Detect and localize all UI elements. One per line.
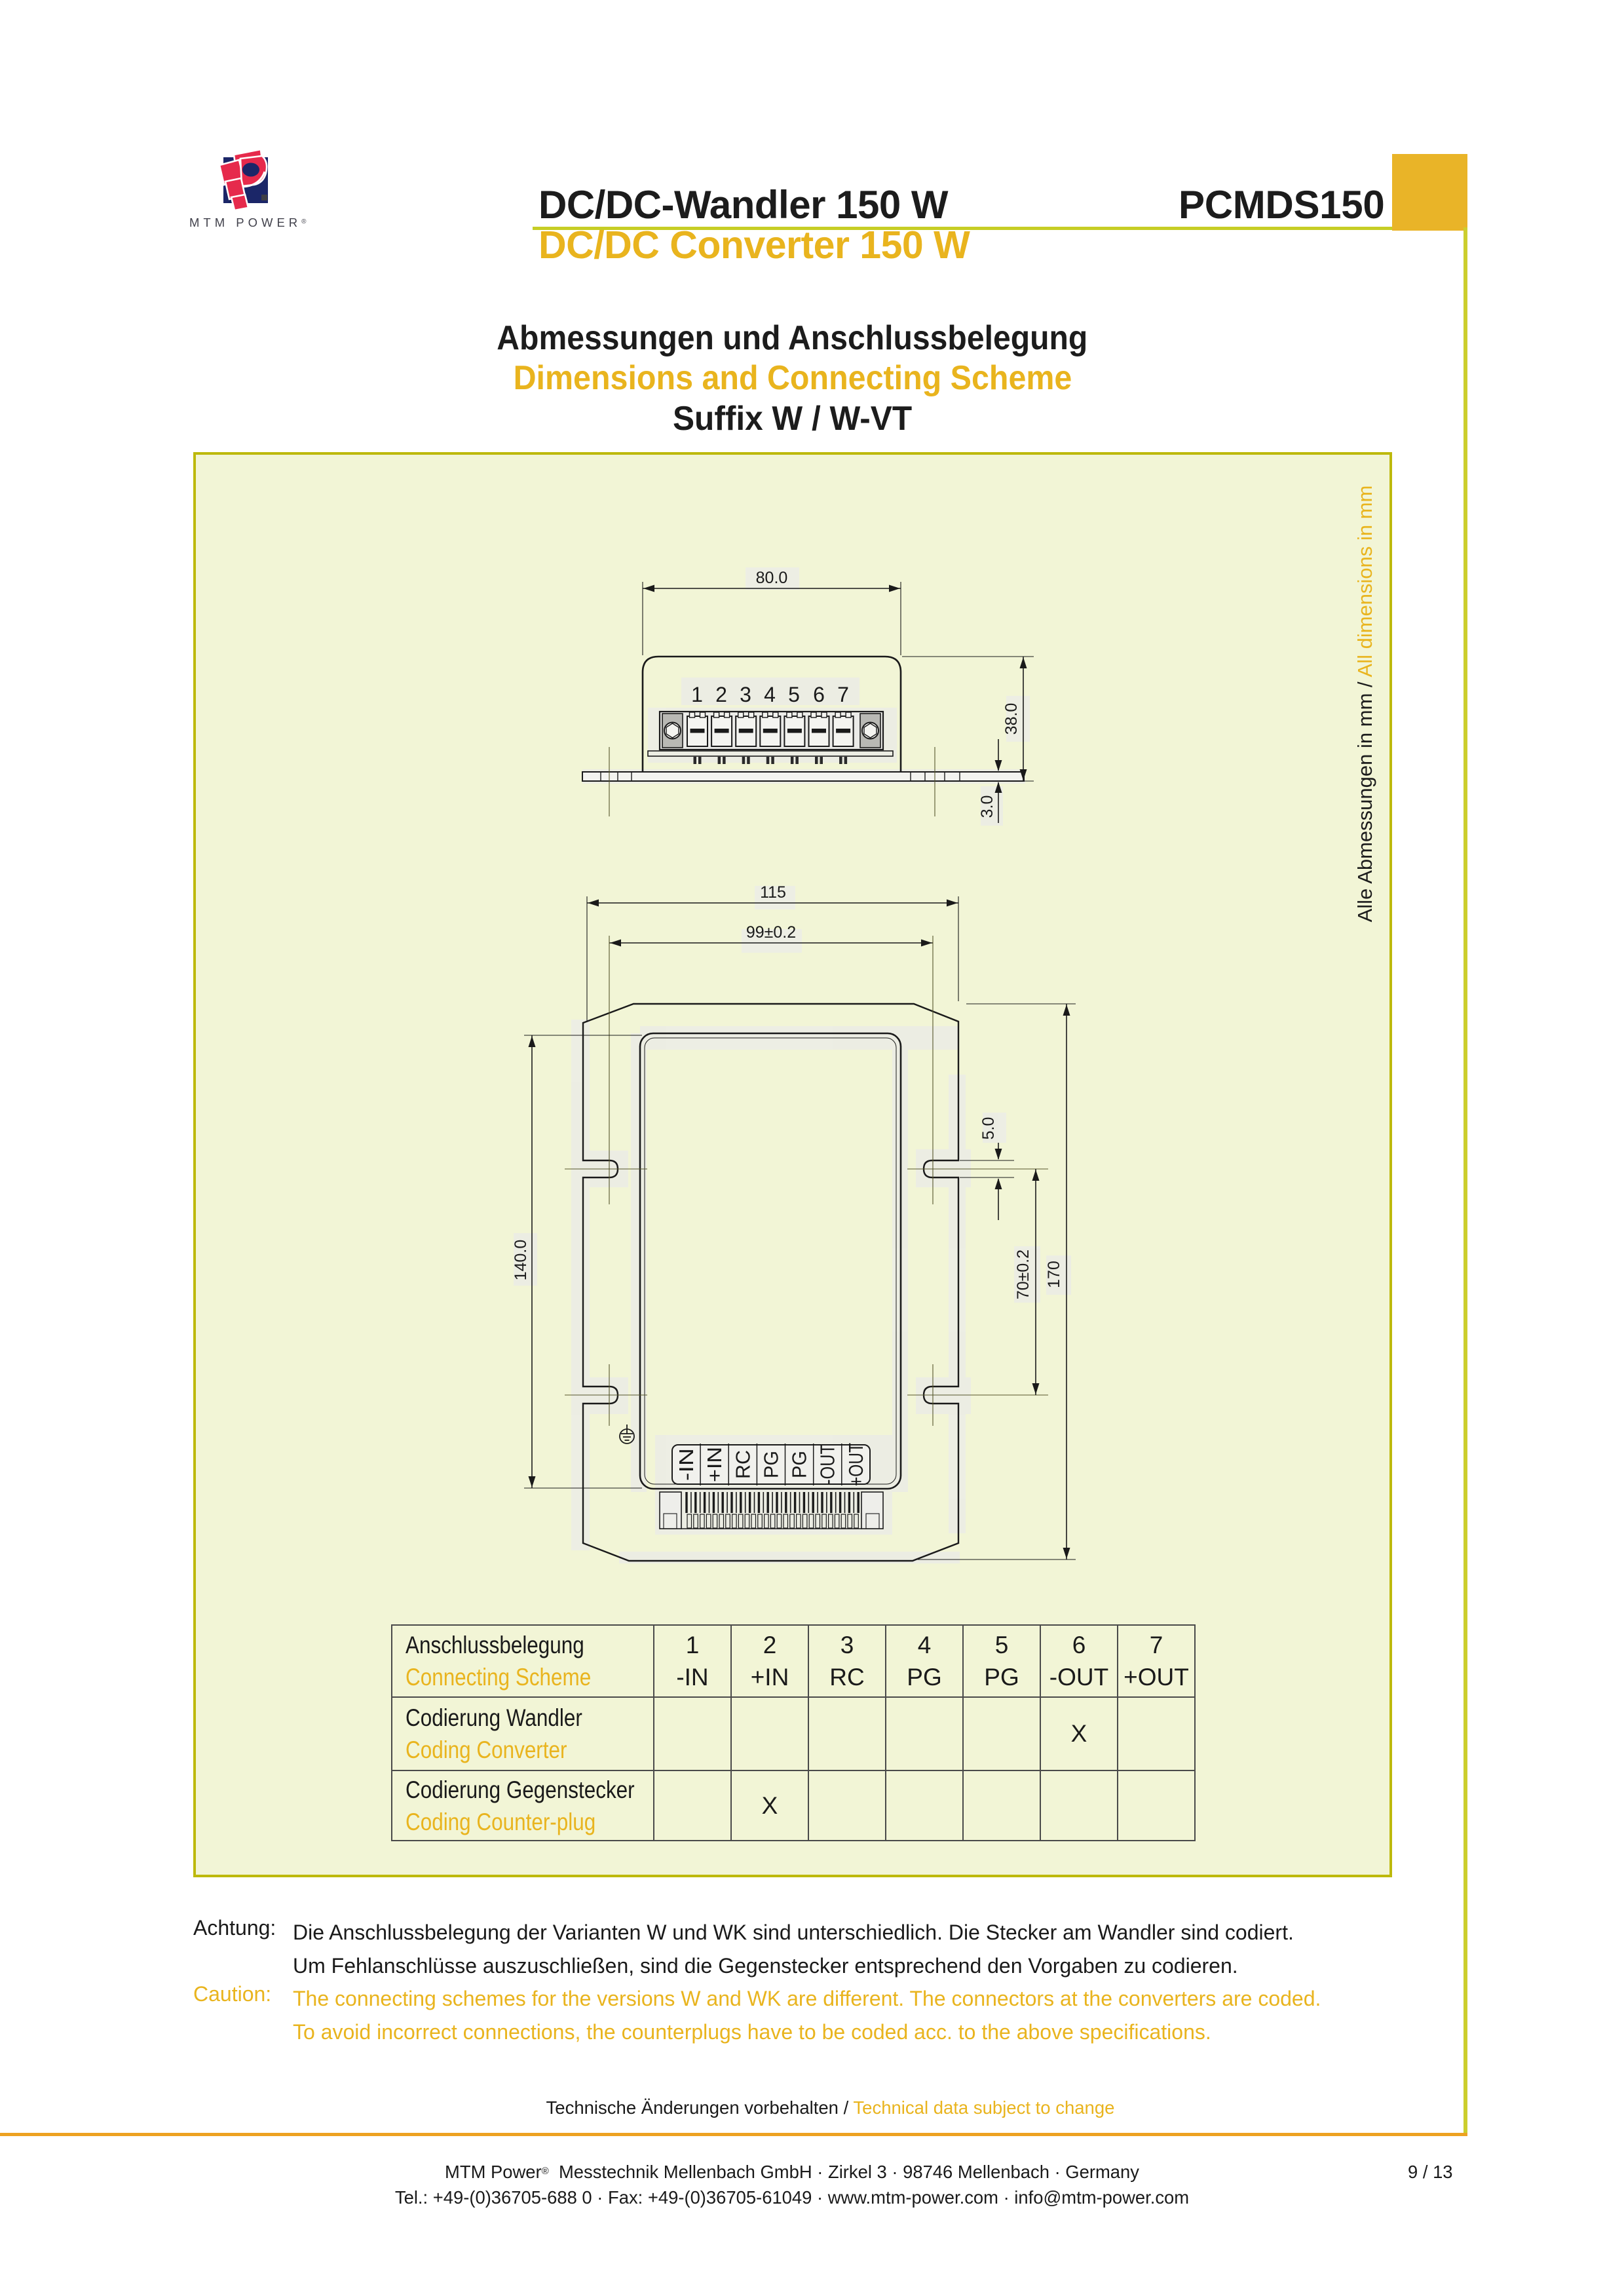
svg-text:99±0.2: 99±0.2 bbox=[746, 923, 796, 942]
svg-text:7: 7 bbox=[837, 683, 849, 706]
svg-text:RC: RC bbox=[731, 1450, 754, 1479]
svg-text:-OUT: -OUT bbox=[816, 1444, 839, 1485]
svg-text:+OUT: +OUT bbox=[844, 1443, 867, 1486]
svg-text:170: 170 bbox=[1045, 1261, 1063, 1288]
svg-text:-IN: -IN bbox=[675, 1448, 698, 1481]
svg-text:5.0: 5.0 bbox=[979, 1117, 998, 1140]
svg-text:6: 6 bbox=[813, 683, 825, 706]
svg-text:38.0: 38.0 bbox=[1002, 703, 1021, 735]
svg-text:140.0: 140.0 bbox=[512, 1240, 530, 1281]
svg-text:115: 115 bbox=[760, 883, 786, 902]
svg-text:3.0: 3.0 bbox=[978, 795, 996, 818]
svg-text:80.0: 80.0 bbox=[756, 569, 788, 587]
svg-text:+IN: +IN bbox=[703, 1447, 726, 1482]
svg-text:PG: PG bbox=[759, 1451, 782, 1478]
svg-text:70±0.2: 70±0.2 bbox=[1014, 1250, 1032, 1299]
svg-text:2: 2 bbox=[715, 683, 727, 706]
svg-text:4: 4 bbox=[764, 683, 776, 706]
svg-text:1: 1 bbox=[691, 683, 703, 706]
svg-text:3: 3 bbox=[740, 683, 751, 706]
svg-text:5: 5 bbox=[788, 683, 800, 706]
svg-text:PG: PG bbox=[788, 1451, 811, 1478]
